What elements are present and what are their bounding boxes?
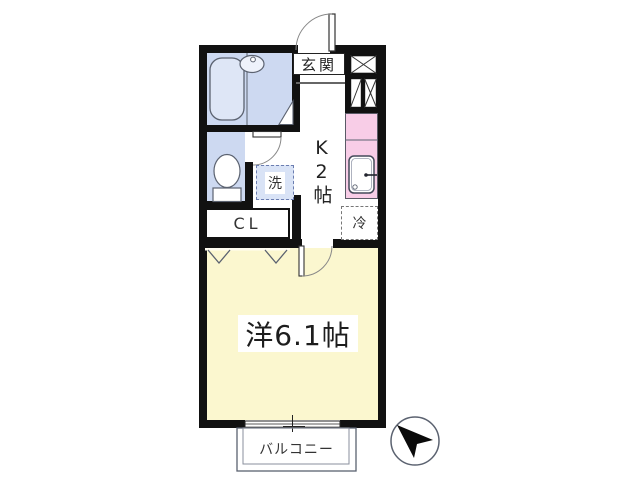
western-room-label: 洋6.1帖 [238, 315, 358, 352]
wall-top-right [330, 45, 386, 53]
sliding-window-icon [245, 421, 340, 427]
refrigerator-label: 冷 [353, 213, 367, 233]
washing-machine-area: 洗 [256, 165, 294, 200]
closet-label: CL [205, 208, 290, 239]
wall-bottom-left [199, 420, 245, 428]
bathroom-floor [207, 53, 292, 125]
floor-plan: 玄関 K2帖 洗 冷 CL 洋6.1帖 バルコニー [0, 0, 640, 480]
wall-bottom-right [340, 420, 386, 428]
utility-shaft-block [345, 53, 386, 113]
western-room-label-text: 洋6.1帖 [245, 314, 351, 354]
wall-top-left [199, 45, 298, 53]
wall-room-top-left [199, 239, 302, 248]
compass-circle [391, 417, 439, 465]
balcony-label-text: バルコニー [259, 439, 334, 459]
toilet-door-leaf [253, 132, 281, 138]
kitchen-counter [345, 113, 378, 199]
wall-bath-bottom [199, 125, 300, 132]
wall-room-top-right [333, 239, 386, 248]
kitchen-label: K2帖 [309, 134, 335, 208]
toilet-door-swing-arc [253, 137, 281, 165]
wall-toilet-bottom [199, 201, 253, 208]
entrance-label: 玄関 [293, 53, 345, 75]
toilet-room-floor [207, 132, 245, 201]
balcony-label: バルコニー [252, 438, 341, 460]
north-arrow-icon [397, 425, 433, 458]
closet-label-text: CL [233, 214, 261, 233]
washing-machine-label: 洗 [265, 172, 285, 194]
entrance-step-line [296, 82, 345, 84]
kitchen-label-text: K2帖 [309, 137, 336, 206]
entrance-label-text: 玄関 [301, 54, 337, 75]
entrance-door-swing-arc [296, 14, 332, 50]
refrigerator-area: 冷 [341, 206, 378, 240]
